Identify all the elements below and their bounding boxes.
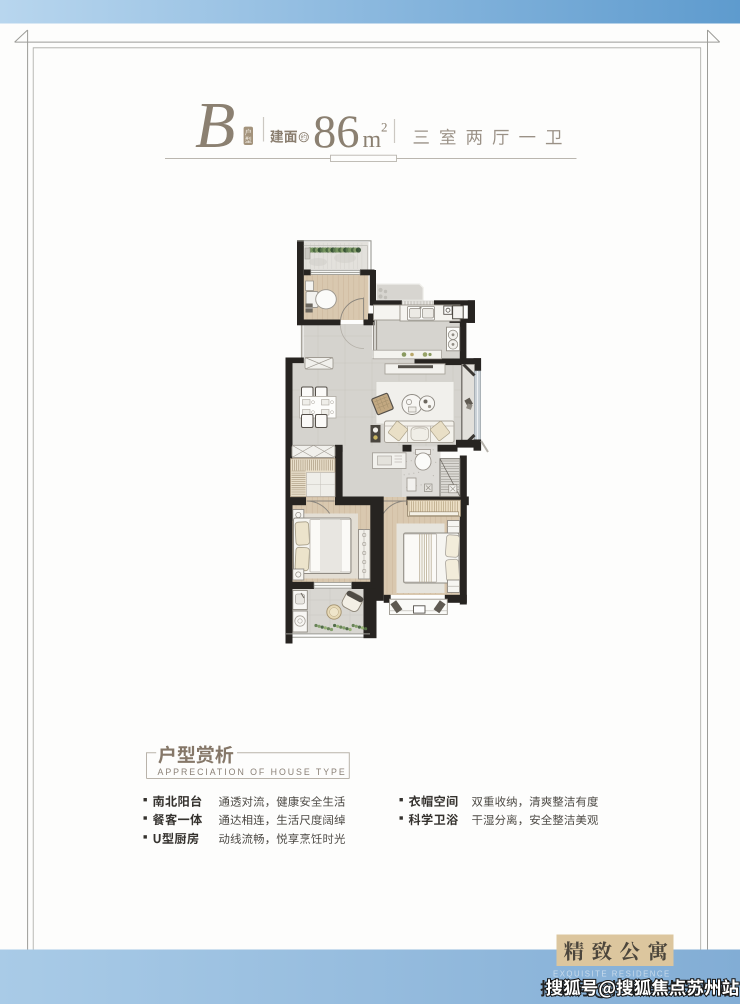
svg-text:APPRECIATION OF HOUSE TYPE: APPRECIATION OF HOUSE TYPE bbox=[158, 767, 347, 777]
svg-text:EXQUISITE RESIDENCE: EXQUISITE RESIDENCE bbox=[553, 970, 671, 979]
svg-text:m: m bbox=[363, 127, 382, 153]
svg-text:86: 86 bbox=[313, 107, 360, 158]
svg-text:B: B bbox=[195, 89, 235, 162]
svg-text:2: 2 bbox=[381, 120, 388, 135]
